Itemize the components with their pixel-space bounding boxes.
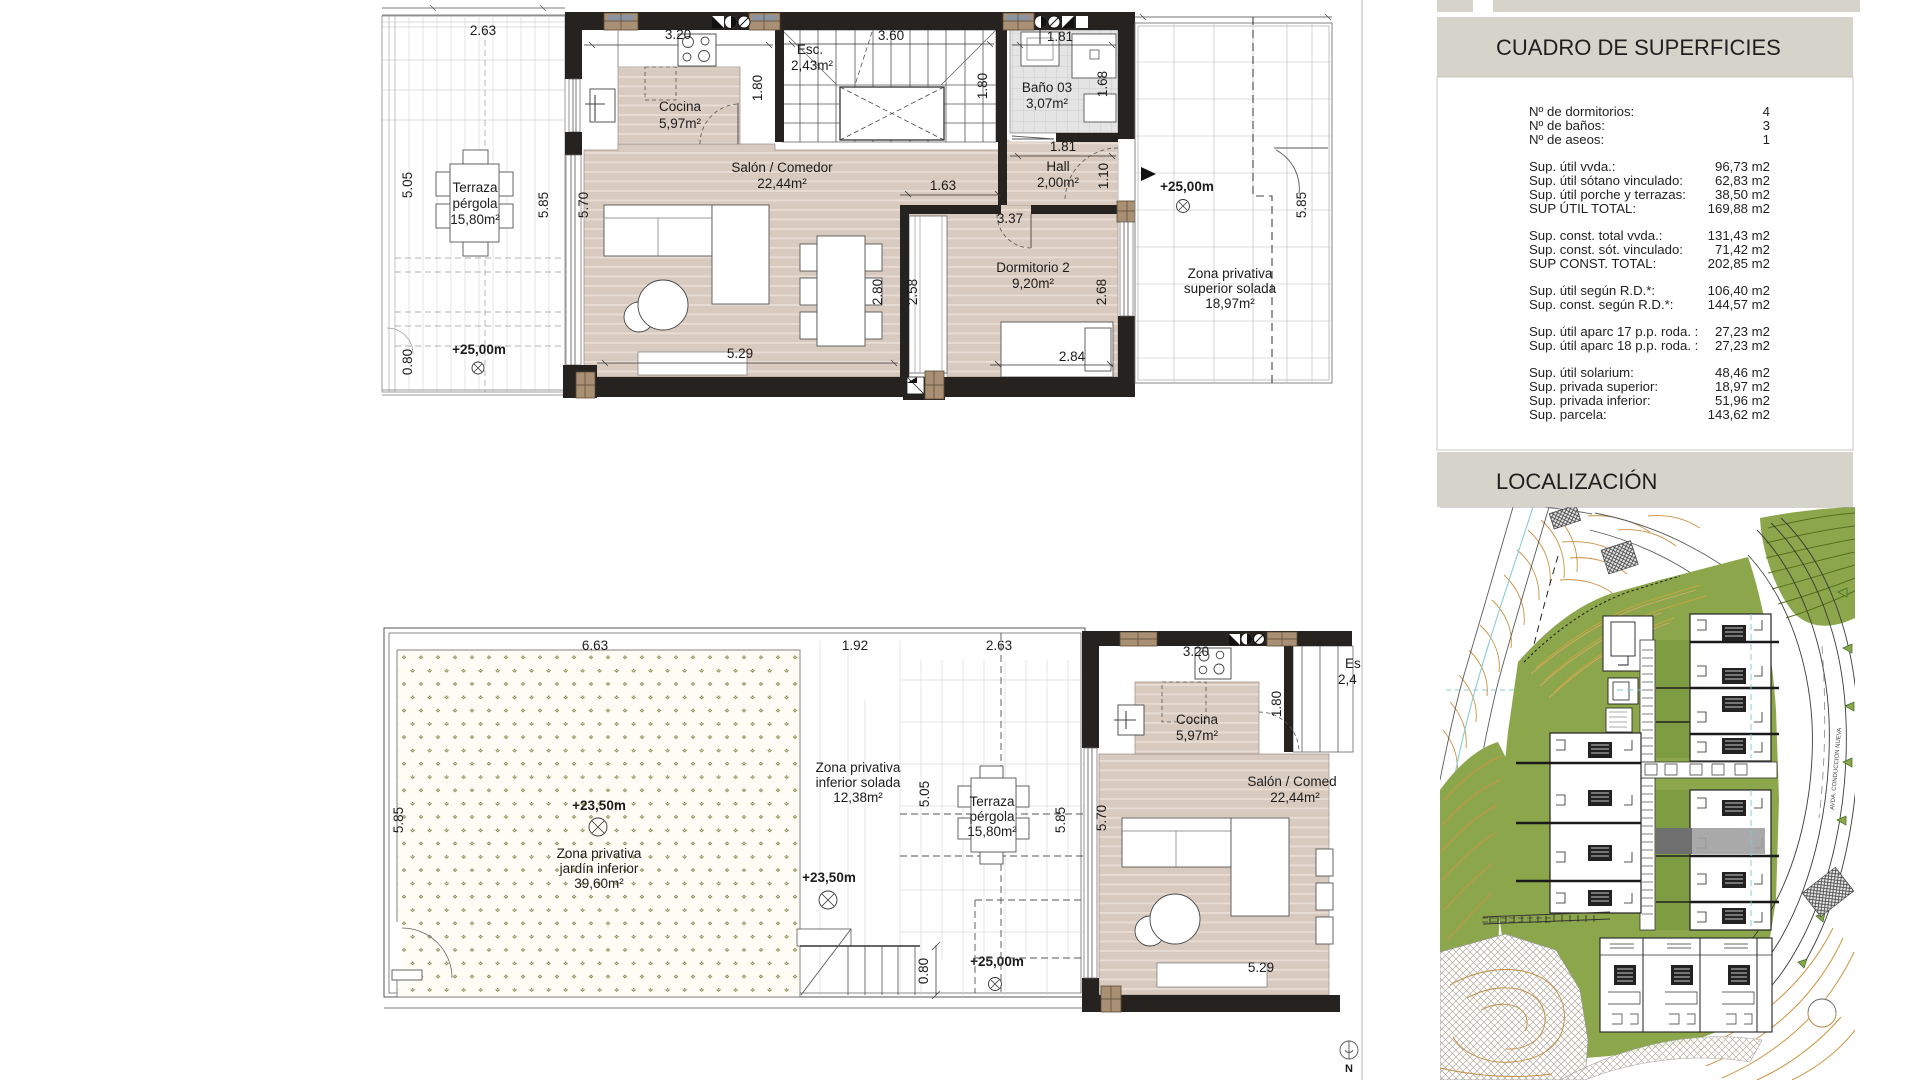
svg-text:48,46 m2: 48,46 m2	[1715, 365, 1770, 380]
svg-text:5,97m²: 5,97m²	[659, 116, 702, 131]
svg-text:71,42 m2: 71,42 m2	[1715, 242, 1770, 257]
svg-text:0.80: 0.80	[916, 958, 931, 984]
svg-text:22,44m²: 22,44m²	[757, 176, 807, 191]
svg-text:2,4: 2,4	[1338, 672, 1357, 687]
svg-text:1.63: 1.63	[930, 178, 956, 193]
svg-text:5.29: 5.29	[727, 346, 753, 361]
svg-text:3.20: 3.20	[1183, 644, 1209, 659]
svg-text:169,88 m2: 169,88 m2	[1708, 201, 1770, 216]
svg-text:Sup. const. sót. vinculado:: Sup. const. sót. vinculado:	[1529, 242, 1683, 257]
svg-text:2.58: 2.58	[905, 279, 920, 305]
svg-text:Terraza: Terraza	[969, 794, 1015, 809]
svg-text:2,00m²: 2,00m²	[1037, 175, 1080, 190]
svg-text:SUP ÚTIL TOTAL:: SUP ÚTIL TOTAL:	[1529, 201, 1636, 216]
svg-text:51,96 m2: 51,96 m2	[1715, 393, 1770, 408]
svg-text:5.70: 5.70	[576, 192, 591, 218]
svg-text:Baño 03: Baño 03	[1022, 80, 1072, 95]
svg-text:1.10: 1.10	[1096, 163, 1111, 189]
svg-text:3,07m²: 3,07m²	[1026, 96, 1069, 111]
svg-text:Nº de aseos:: Nº de aseos:	[1529, 132, 1604, 147]
svg-text:CUADRO DE SUPERFICIES: CUADRO DE SUPERFICIES	[1496, 35, 1781, 60]
svg-text:Sup. útil vvda.:: Sup. útil vvda.:	[1529, 159, 1616, 174]
svg-text:1.81: 1.81	[1047, 29, 1073, 44]
svg-text:22,44m²: 22,44m²	[1270, 790, 1320, 805]
svg-text:Nº de baños:: Nº de baños:	[1529, 118, 1605, 133]
svg-text:Sup. privada superior:: Sup. privada superior:	[1529, 379, 1658, 394]
svg-text:Sup. útil según R.D.*:: Sup. útil según R.D.*:	[1529, 283, 1655, 298]
svg-text:27,23 m2: 27,23 m2	[1715, 324, 1770, 339]
svg-text:Zona privativa: Zona privativa	[557, 846, 642, 861]
svg-text:18,97m²: 18,97m²	[1205, 296, 1255, 311]
svg-text:2.84: 2.84	[1059, 349, 1086, 364]
svg-text:18,97 m2: 18,97 m2	[1715, 379, 1770, 394]
svg-text:1: 1	[1763, 132, 1770, 147]
svg-text:Zona privativa: Zona privativa	[1188, 266, 1273, 281]
svg-text:N: N	[1345, 1063, 1353, 1075]
svg-text:LOCALIZACIÓN: LOCALIZACIÓN	[1496, 469, 1657, 494]
svg-text:Terraza: Terraza	[452, 180, 498, 195]
svg-text:Sup. privada inferior:: Sup. privada inferior:	[1529, 393, 1651, 408]
svg-text:Es: Es	[1345, 656, 1361, 671]
svg-text:1.80: 1.80	[1269, 691, 1284, 717]
svg-text:Sup. útil porche y terrazas:: Sup. útil porche y terrazas:	[1529, 187, 1686, 202]
svg-text:Sup. const. según R.D.*:: Sup. const. según R.D.*:	[1529, 297, 1673, 312]
svg-text:96,73 m2: 96,73 m2	[1715, 159, 1770, 174]
svg-text:2.68: 2.68	[1094, 279, 1109, 305]
svg-text:Salón / Comed: Salón / Comed	[1247, 774, 1336, 789]
svg-text:Sup. útil sótano vinculado:: Sup. útil sótano vinculado:	[1529, 173, 1683, 188]
svg-text:1.80: 1.80	[975, 73, 990, 99]
svg-text:Sup. útil aparc 17 p.p. roda.: Sup. útil aparc 17 p.p. roda. :	[1529, 324, 1698, 339]
svg-text:38,50 m2: 38,50 m2	[1715, 187, 1770, 202]
svg-text:3.20: 3.20	[665, 27, 691, 42]
svg-text:1.68: 1.68	[1095, 71, 1110, 97]
svg-text:39,60m²: 39,60m²	[574, 876, 624, 891]
svg-text:+25,00m: +25,00m	[970, 954, 1024, 969]
svg-text:Dormitorio 2: Dormitorio 2	[996, 260, 1070, 275]
svg-text:5.70: 5.70	[1094, 805, 1109, 831]
svg-text:Zona privativa: Zona privativa	[816, 760, 901, 775]
svg-text:5.05: 5.05	[917, 781, 932, 807]
svg-text:62,83 m2: 62,83 m2	[1715, 173, 1770, 188]
svg-text:inferior solada: inferior solada	[816, 775, 901, 790]
svg-text:9,20m²: 9,20m²	[1012, 276, 1055, 291]
svg-text:pérgola: pérgola	[969, 809, 1015, 824]
svg-text:3: 3	[1763, 118, 1770, 133]
svg-text:5.85: 5.85	[1053, 807, 1068, 833]
svg-text:Hall: Hall	[1046, 159, 1069, 174]
svg-text:27,23 m2: 27,23 m2	[1715, 338, 1770, 353]
svg-text:1.81: 1.81	[1050, 139, 1076, 154]
svg-text:2.80: 2.80	[870, 279, 885, 305]
svg-text:Cocina: Cocina	[1176, 712, 1219, 727]
svg-text:1.92: 1.92	[842, 638, 868, 653]
svg-text:1.80: 1.80	[750, 75, 765, 101]
svg-text:2,43m²: 2,43m²	[791, 58, 834, 73]
svg-text:Sup. útil aparc 18 p.p. roda.: Sup. útil aparc 18 p.p. roda. :	[1529, 338, 1698, 353]
svg-text:106,40 m2: 106,40 m2	[1708, 283, 1770, 298]
svg-text:2.63: 2.63	[986, 638, 1012, 653]
svg-text:Esc.: Esc.	[797, 42, 823, 57]
svg-text:SUP CONST. TOTAL:: SUP CONST. TOTAL:	[1529, 256, 1656, 271]
svg-text:131,43 m2: 131,43 m2	[1708, 228, 1770, 243]
svg-text:Nº de dormitorios:: Nº de dormitorios:	[1529, 104, 1634, 119]
svg-text:Sup. const. total vvda.:: Sup. const. total vvda.:	[1529, 228, 1662, 243]
svg-text:5.85: 5.85	[1294, 192, 1309, 218]
svg-text:+23,50m: +23,50m	[572, 798, 626, 813]
svg-text:+25,00m: +25,00m	[452, 342, 506, 357]
svg-text:Sup. parcela:: Sup. parcela:	[1529, 407, 1607, 422]
svg-text:superior solada: superior solada	[1184, 281, 1277, 296]
svg-text:Salón / Comedor: Salón / Comedor	[731, 160, 833, 175]
svg-text:2.63: 2.63	[470, 23, 496, 38]
svg-text:6.63: 6.63	[582, 638, 608, 653]
svg-text:+23,50m: +23,50m	[802, 870, 856, 885]
svg-text:15,80m²: 15,80m²	[450, 212, 500, 227]
svg-text:4: 4	[1763, 104, 1770, 119]
svg-text:5.85: 5.85	[391, 807, 406, 833]
svg-text:5.05: 5.05	[400, 172, 415, 198]
svg-text:5,97m²: 5,97m²	[1176, 728, 1219, 743]
svg-text:pérgola: pérgola	[452, 196, 498, 211]
svg-text:jardín inferior: jardín inferior	[559, 861, 639, 876]
svg-text:Sup. útil solarium:: Sup. útil solarium:	[1529, 365, 1634, 380]
svg-text:3.60: 3.60	[878, 28, 904, 43]
svg-text:Cocina: Cocina	[659, 99, 702, 114]
svg-text:15,80m²: 15,80m²	[967, 824, 1017, 839]
svg-text:5.85: 5.85	[536, 192, 551, 218]
svg-text:144,57 m2: 144,57 m2	[1708, 297, 1770, 312]
svg-text:5.29: 5.29	[1248, 960, 1274, 975]
svg-text:202,85 m2: 202,85 m2	[1708, 256, 1770, 271]
svg-text:143,62 m2: 143,62 m2	[1708, 407, 1770, 422]
svg-text:0.80: 0.80	[400, 349, 415, 375]
svg-text:12,38m²: 12,38m²	[833, 790, 883, 805]
svg-text:+25,00m: +25,00m	[1160, 179, 1214, 194]
svg-text:3.37: 3.37	[997, 211, 1023, 226]
